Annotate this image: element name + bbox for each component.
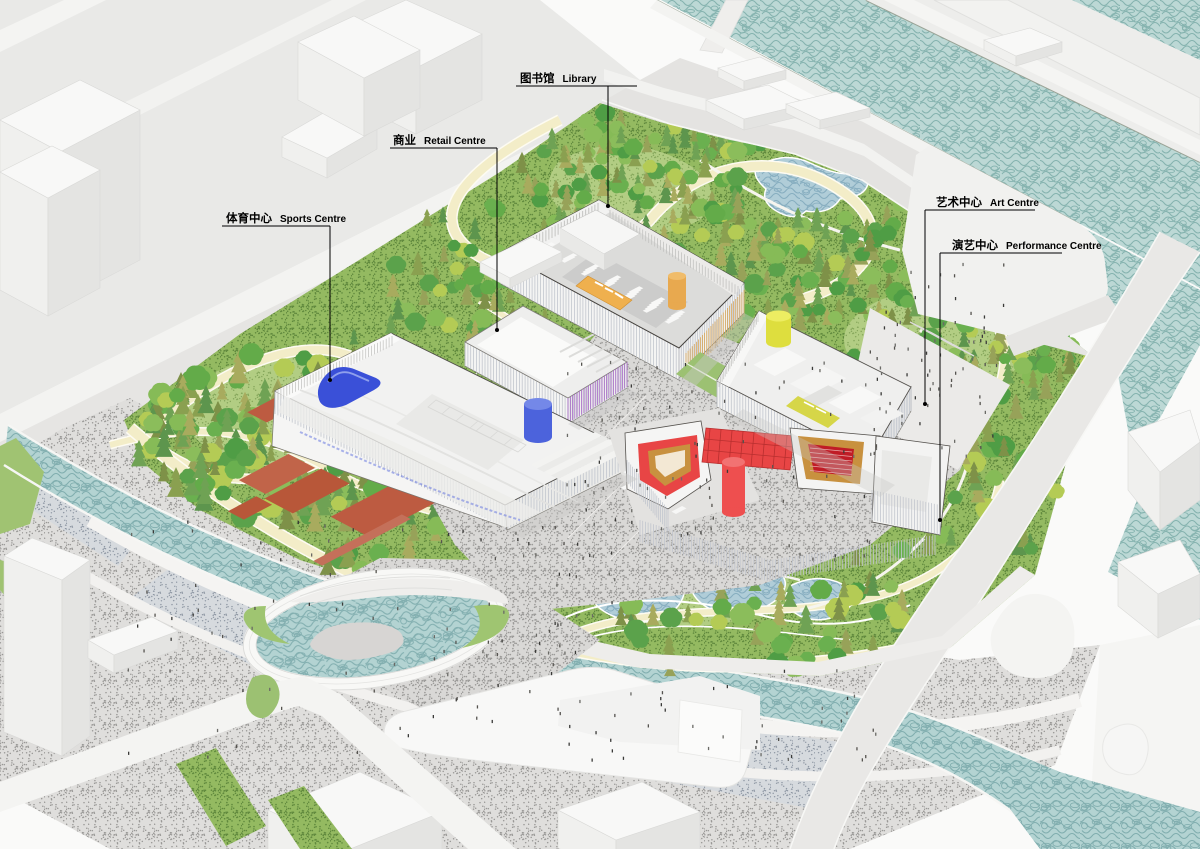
- svg-text:体育中心: 体育中心: [226, 211, 272, 225]
- svg-text:Performance Centre: Performance Centre: [1006, 241, 1102, 252]
- svg-text:Library: Library: [563, 74, 597, 85]
- svg-text:Retail Centre: Retail Centre: [424, 136, 486, 147]
- svg-text:艺术中心: 艺术中心: [936, 195, 982, 209]
- svg-text:图书馆: 图书馆: [520, 71, 555, 85]
- svg-text:Sports Centre: Sports Centre: [280, 214, 347, 225]
- svg-text:Art Centre: Art Centre: [990, 198, 1039, 209]
- svg-text:演艺中心: 演艺中心: [952, 238, 998, 252]
- svg-text:商业: 商业: [393, 133, 416, 147]
